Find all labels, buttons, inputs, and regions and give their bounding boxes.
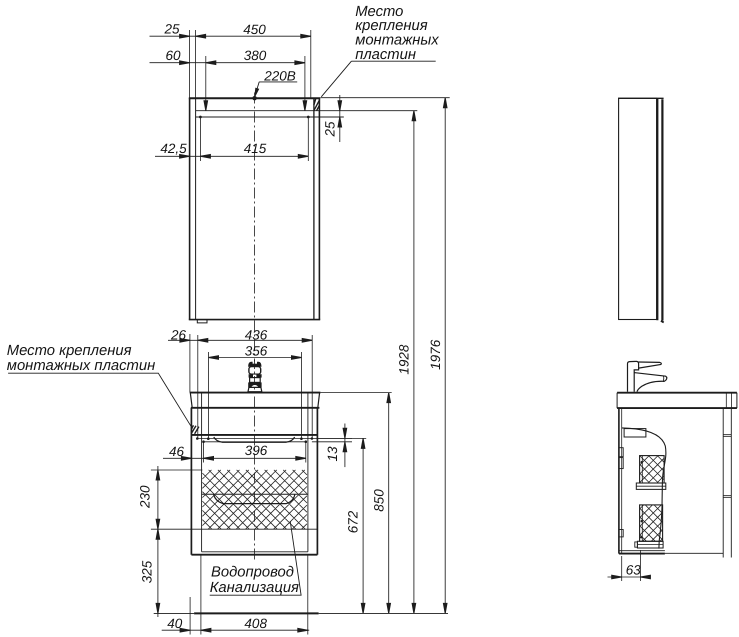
svg-text:пластин: пластин [355, 47, 416, 63]
svg-text:450: 450 [243, 22, 266, 37]
svg-text:380: 380 [244, 48, 267, 63]
svg-text:63: 63 [626, 563, 642, 578]
svg-text:356: 356 [245, 343, 268, 358]
svg-text:25: 25 [163, 22, 180, 37]
svg-text:325: 325 [139, 560, 154, 583]
svg-text:1928: 1928 [397, 344, 412, 375]
svg-text:60: 60 [165, 48, 181, 63]
svg-text:монтажных пластин: монтажных пластин [7, 358, 155, 374]
svg-text:1976: 1976 [428, 339, 443, 370]
svg-text:Водопровод: Водопровод [211, 565, 294, 581]
svg-text:220B: 220B [263, 69, 296, 84]
svg-text:13: 13 [325, 446, 340, 462]
svg-text:396: 396 [245, 443, 268, 458]
svg-text:42,5: 42,5 [160, 141, 187, 156]
svg-text:436: 436 [245, 327, 268, 342]
svg-text:46: 46 [169, 444, 185, 459]
svg-text:Канализация: Канализация [210, 580, 299, 596]
svg-text:Место крепления: Место крепления [7, 343, 132, 359]
svg-text:850: 850 [372, 489, 387, 512]
svg-text:230: 230 [138, 485, 153, 509]
svg-text:40: 40 [167, 616, 183, 631]
svg-text:26: 26 [170, 327, 187, 342]
svg-text:415: 415 [244, 141, 267, 156]
svg-text:408: 408 [244, 616, 267, 631]
svg-text:25: 25 [322, 121, 337, 138]
svg-text:672: 672 [346, 510, 361, 533]
